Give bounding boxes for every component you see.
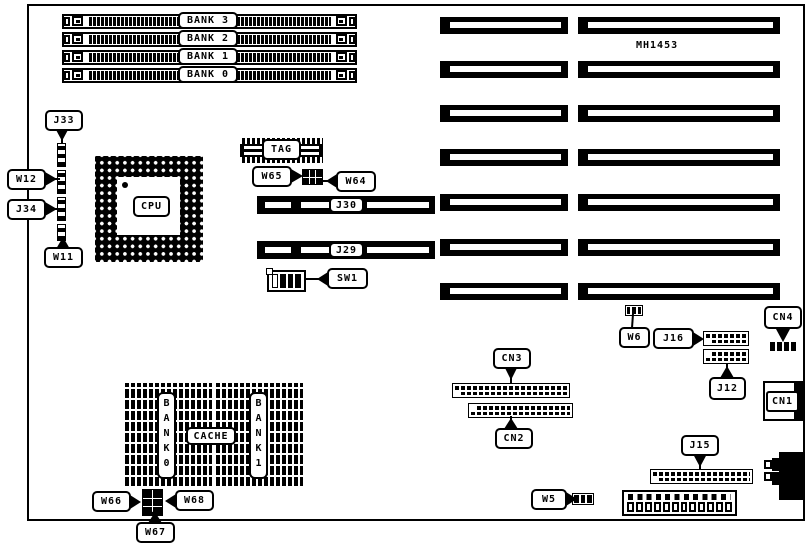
slot-key bbox=[265, 202, 291, 208]
label-j15: J15 bbox=[681, 435, 719, 456]
simm-clip bbox=[336, 16, 347, 26]
socket-tab bbox=[64, 53, 70, 62]
isa-slot bbox=[578, 283, 780, 300]
socket-pin bbox=[764, 460, 772, 469]
pin-row bbox=[706, 334, 746, 338]
j15-header bbox=[650, 469, 753, 484]
socket-pin bbox=[764, 472, 772, 481]
pin1-marker-dot bbox=[122, 182, 128, 188]
pin1-marker bbox=[706, 339, 710, 343]
socket-tab bbox=[64, 17, 70, 26]
pin-row bbox=[471, 412, 570, 416]
label-cache-bank0: B A N K 0 bbox=[157, 392, 176, 479]
simm-clip bbox=[72, 16, 83, 26]
socket-tab bbox=[772, 458, 780, 471]
label-cache: CACHE bbox=[186, 427, 236, 445]
isa-slot bbox=[440, 105, 568, 122]
pin1-marker bbox=[653, 477, 657, 481]
label-bank2: BANK 2 bbox=[178, 30, 238, 47]
label-tag: TAG bbox=[262, 139, 301, 160]
socket-tab bbox=[349, 35, 355, 44]
cn2-header bbox=[468, 403, 573, 418]
socket-tab bbox=[64, 71, 70, 80]
label-w64: W64 bbox=[336, 171, 376, 192]
switch-position bbox=[288, 274, 294, 288]
j34-pin-strip bbox=[57, 197, 66, 221]
label-bank0: BANK 0 bbox=[178, 66, 238, 83]
isa-slot bbox=[440, 239, 568, 256]
pin1-marker bbox=[455, 391, 459, 395]
socket-tab bbox=[349, 53, 355, 62]
w5-jumper bbox=[572, 493, 594, 505]
label-j30: J30 bbox=[329, 197, 364, 213]
pin-row bbox=[706, 340, 746, 344]
pin-row bbox=[653, 472, 750, 476]
label-cn3: CN3 bbox=[493, 348, 531, 369]
pin1-marker bbox=[471, 406, 475, 410]
socket-tab bbox=[64, 35, 70, 44]
simm-clip bbox=[336, 34, 347, 44]
label-j29: J29 bbox=[329, 242, 364, 258]
switch-pin1-marker bbox=[266, 268, 273, 275]
w6-jumper bbox=[625, 305, 643, 316]
simm-clip bbox=[336, 52, 347, 62]
cn3-header bbox=[452, 383, 570, 398]
label-w67: W67 bbox=[136, 522, 175, 543]
label-w66: W66 bbox=[92, 491, 131, 512]
w64-w65-jumper-block bbox=[302, 169, 323, 185]
label-w12: W12 bbox=[7, 169, 46, 190]
power-pin-cells bbox=[627, 502, 732, 512]
simm-clip bbox=[72, 52, 83, 62]
j16-header bbox=[703, 331, 749, 346]
isa-slot bbox=[578, 105, 780, 122]
label-cpu: CPU bbox=[133, 196, 170, 217]
label-j33: J33 bbox=[45, 110, 83, 131]
label-sw1: SW1 bbox=[327, 268, 368, 289]
isa-slot bbox=[578, 17, 780, 34]
label-cn1: CN1 bbox=[766, 391, 799, 412]
socket-tab bbox=[772, 472, 780, 485]
label-j12: J12 bbox=[709, 377, 746, 400]
label-bank3: BANK 3 bbox=[178, 12, 238, 29]
isa-slot bbox=[440, 61, 568, 78]
slot-key bbox=[367, 247, 429, 253]
isa-slot bbox=[578, 61, 780, 78]
slot-key bbox=[265, 247, 291, 253]
j33-pin-strip bbox=[57, 143, 66, 167]
socket-tab bbox=[349, 71, 355, 80]
isa-slot bbox=[440, 149, 568, 166]
label-bank1: BANK 1 bbox=[178, 48, 238, 65]
w66-w67-w68-jumper-block bbox=[142, 489, 163, 516]
slot-key bbox=[367, 202, 429, 208]
label-w5: W5 bbox=[531, 489, 567, 510]
switch-position bbox=[272, 274, 278, 288]
switch-position bbox=[295, 274, 301, 288]
w11-pin-strip bbox=[57, 224, 66, 241]
j12-header bbox=[703, 349, 749, 364]
switch-position bbox=[280, 274, 286, 288]
motherboard-diagram: BANK 3 BANK 2 BANK 1 BANK 0 MH1453 J33 W… bbox=[0, 0, 810, 552]
isa-slot bbox=[440, 194, 568, 211]
isa-slot bbox=[578, 149, 780, 166]
pin-row bbox=[471, 406, 570, 410]
w12-pin-strip bbox=[57, 170, 66, 194]
label-cn2: CN2 bbox=[495, 428, 533, 449]
label-cn4: CN4 bbox=[764, 306, 802, 329]
pin-row bbox=[455, 392, 567, 396]
simm-clip bbox=[336, 70, 347, 80]
isa-slot bbox=[578, 194, 780, 211]
pin1-marker bbox=[706, 352, 710, 356]
label-w68: W68 bbox=[175, 490, 214, 511]
power-pins bbox=[628, 494, 731, 500]
isa-slot bbox=[440, 283, 568, 300]
power-socket-silhouette bbox=[779, 452, 805, 500]
board-part-number: MH1453 bbox=[636, 40, 678, 51]
socket-tab bbox=[349, 17, 355, 26]
label-w6: W6 bbox=[619, 327, 650, 348]
isa-slot bbox=[578, 239, 780, 256]
simm-clip bbox=[72, 70, 83, 80]
pin-row bbox=[706, 358, 746, 362]
label-w65: W65 bbox=[252, 166, 292, 187]
pin-row bbox=[706, 352, 746, 356]
label-w11: W11 bbox=[44, 247, 83, 268]
pin-row bbox=[653, 478, 750, 482]
label-cache-bank1: B A N K 1 bbox=[249, 392, 268, 479]
label-j16: J16 bbox=[653, 328, 694, 349]
isa-slot bbox=[440, 17, 568, 34]
label-j34: J34 bbox=[7, 199, 46, 220]
cn4-connector bbox=[770, 342, 798, 351]
power-connector bbox=[622, 490, 737, 516]
pin-row bbox=[455, 386, 567, 390]
simm-clip bbox=[72, 34, 83, 44]
